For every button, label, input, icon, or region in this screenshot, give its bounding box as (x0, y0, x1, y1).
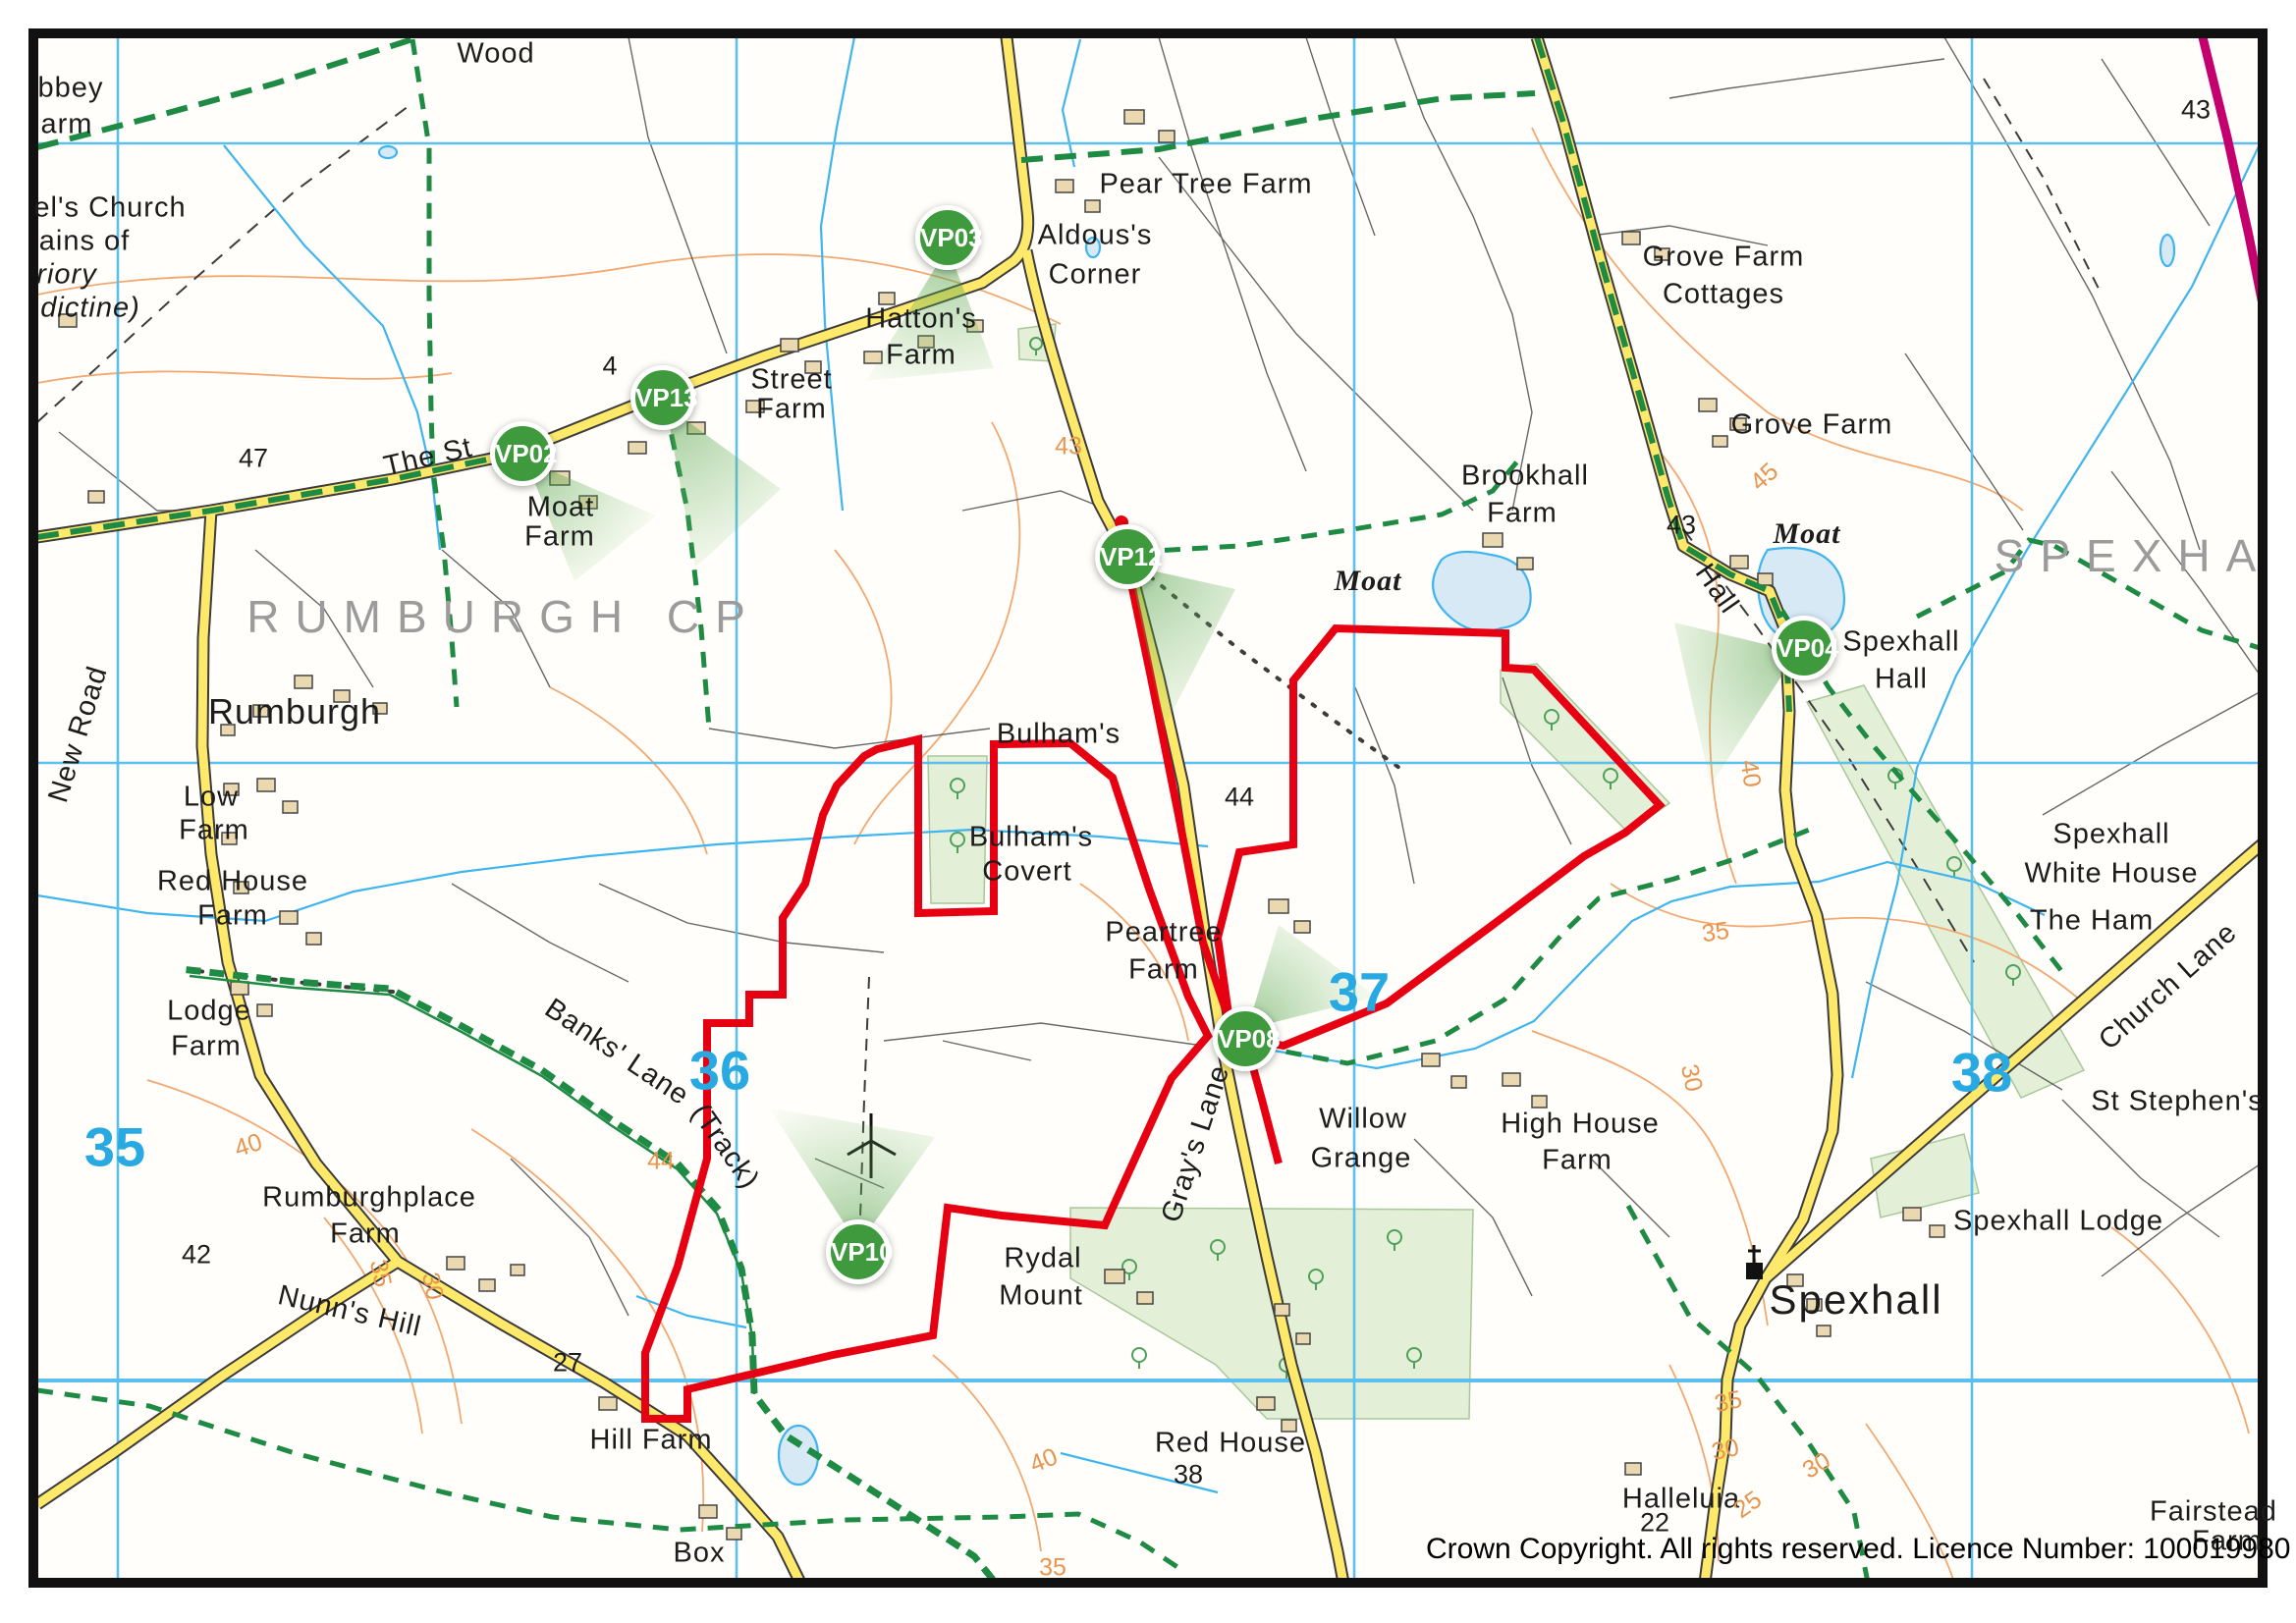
label-bulhams-covert-2: Covert (982, 856, 1071, 889)
label-rydal-mount-1: Rydal (1004, 1243, 1081, 1275)
label-red-house-farm-2: Farm (197, 900, 268, 933)
label-aldouss-corner-1: Aldous's (1038, 220, 1153, 252)
parish-name-rumburgh-cp: RUMBURGH CP (246, 590, 761, 643)
copyright-notice: Crown Copyright. All rights reserved. Li… (1426, 1533, 2290, 1566)
viewpoint-marker-vp03[interactable]: VP03 (915, 205, 980, 270)
map-page: RUMBURGH CP SPEXHA 35 36 37 38 Wood bbey… (0, 0, 2296, 1623)
label-low-farm-2: Farm (179, 815, 249, 847)
label-grove-farm: Grove Farm (1731, 409, 1893, 442)
label-red-house: Red House (1155, 1428, 1306, 1460)
label-brookhall-farm-1: Brookhall (1461, 460, 1589, 493)
contour-label: 30 (415, 1270, 449, 1302)
label-pear-tree-farm: Pear Tree Farm (1099, 169, 1312, 201)
label-aldouss-corner-2: Corner (1049, 259, 1142, 292)
spot-height: 4 (602, 352, 617, 382)
grid-easting-36: 36 (689, 1039, 750, 1103)
label-spexhall-village: Spexhall (1769, 1276, 1942, 1324)
label-rumburgh-village: Rumburgh (208, 691, 381, 732)
label-abbey-farm-2: arm (41, 109, 93, 141)
label-spexhall-lodge: Spexhall Lodge (1953, 1206, 2163, 1238)
label-spexhall-white-house-1: Spexhall (2052, 819, 2169, 851)
label-lodge-farm-1: Lodge (167, 996, 251, 1028)
label-st-stephens: St Stephen's (2091, 1086, 2264, 1118)
label-spexhall-hall-1: Spexhall (1842, 626, 1959, 659)
contour-label: 35 (1039, 1554, 1066, 1583)
label-red-house-farm-1: Red House (157, 866, 308, 898)
label-lodge-farm-2: Farm (171, 1031, 242, 1063)
label-church-1: el's Church (33, 192, 186, 225)
label-grove-farm-cottages-1: Grove Farm (1643, 242, 1805, 274)
label-moat-farm-1: Moat (527, 492, 594, 524)
label-moat-antiquity-spexhall: Moat (1773, 517, 1840, 551)
label-rumburghplace-farm-2: Farm (330, 1218, 401, 1251)
label-high-house-farm-2: Farm (1542, 1145, 1613, 1177)
label-bulhams-covert-1: Bulham's (969, 822, 1093, 854)
label-bulhams: Bulham's (997, 719, 1121, 751)
spot-height: 38 (1174, 1460, 1203, 1490)
label-rydal-mount-2: Mount (999, 1280, 1083, 1313)
label-wood: Wood (457, 38, 534, 71)
label-rumburghplace-farm-1: Rumburghplace (262, 1182, 476, 1215)
viewpoint-marker-vp04[interactable]: VP04 (1772, 616, 1836, 680)
contour-label: 30 (1674, 1061, 1708, 1094)
label-street-farm-1: Street (750, 364, 832, 397)
label-abbey-farm-1: bbey (38, 73, 104, 105)
viewpoint-marker-vp08[interactable]: VP08 (1213, 1006, 1278, 1071)
contour-label: 30 (1709, 1434, 1741, 1467)
spot-height: 43 (1667, 511, 1696, 541)
label-grove-farm-cottages-2: Cottages (1663, 279, 1784, 311)
label-street-farm-2: Farm (756, 394, 827, 426)
label-high-house-farm-1: High House (1501, 1109, 1660, 1141)
spot-height: 47 (239, 444, 268, 474)
contour-label: 44 (647, 1148, 675, 1176)
grid-easting-37: 37 (1329, 960, 1390, 1024)
label-moat-farm-2: Farm (524, 521, 595, 554)
label-church-2: ains of (39, 226, 130, 258)
contour-label: 35 (1700, 917, 1731, 949)
label-willow-grange-1: Willow (1319, 1104, 1407, 1136)
spot-height: 44 (1225, 783, 1254, 813)
label-the-ham: The Ham (2030, 905, 2154, 938)
spot-height: 27 (553, 1348, 582, 1379)
grid-easting-35: 35 (84, 1115, 145, 1179)
label-fairstead-farm-1: Fairstead (2150, 1496, 2277, 1529)
viewpoint-marker-vp12[interactable]: VP12 (1095, 524, 1160, 589)
label-hill-farm: Hill Farm (590, 1425, 713, 1457)
grid-easting-38: 38 (1951, 1041, 2012, 1105)
label-priory-2: dictine) (40, 293, 140, 325)
label-peartree-farm-1: Peartree (1105, 917, 1222, 949)
label-moat-antiquity-brookhall: Moat (1334, 565, 1401, 598)
contour-label: 40 (1734, 758, 1767, 789)
viewpoint-marker-vp10[interactable]: VP10 (826, 1219, 891, 1284)
parish-name-spexhall: SPEXHA (1995, 529, 2272, 582)
label-willow-grange-2: Grange (1311, 1143, 1412, 1175)
label-spexhall-white-house-2: White House (2024, 858, 2198, 891)
label-peartree-farm-2: Farm (1128, 954, 1199, 987)
label-box: Box (674, 1538, 726, 1570)
label-priory-1: riory (36, 259, 96, 292)
label-hattons-farm-2: Farm (886, 340, 957, 372)
contour-label: 43 (1055, 433, 1082, 461)
label-low-farm-1: Low (184, 782, 239, 814)
label-spexhall-hall-2: Hall (1875, 664, 1928, 696)
label-hattons-farm-1: Hatton's (865, 303, 976, 336)
label-brookhall-farm-2: Farm (1487, 498, 1558, 530)
spot-height: 42 (182, 1240, 211, 1271)
contour-label: 35 (1712, 1385, 1744, 1419)
contour-label: 35 (363, 1257, 397, 1289)
viewpoint-marker-vp13[interactable]: VP13 (630, 365, 695, 430)
viewpoint-marker-vp02[interactable]: VP02 (490, 421, 555, 486)
spot-height: 43 (2181, 95, 2211, 126)
